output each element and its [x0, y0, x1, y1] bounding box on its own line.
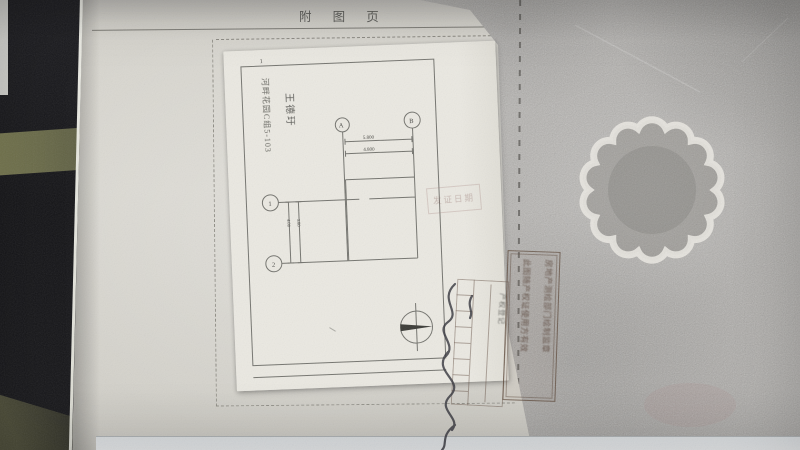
background-sliver	[0, 0, 8, 95]
faint-date-stamp: 发证日期	[426, 184, 482, 215]
dim-label-left-outer: 4.00	[286, 219, 291, 228]
page-title: 附 图 页	[299, 6, 388, 25]
page-number: 1	[260, 59, 263, 65]
owner-name: 王德玗	[283, 93, 298, 128]
pink-smudge	[644, 383, 736, 427]
pencil-mark	[329, 327, 335, 331]
axis-label-1: 1	[268, 201, 272, 208]
dimension-lines-top	[345, 136, 413, 157]
room-outline	[346, 177, 418, 261]
handwritten-signature	[408, 270, 508, 450]
dim-label-top-inner: 4.800	[363, 148, 375, 153]
photo-of-certificate-page: 附 图 页	[0, 0, 800, 450]
faint-date-stamp-text: 发证日期	[433, 191, 476, 207]
axis-label-2: 2	[272, 262, 276, 269]
paper-crease	[575, 25, 700, 92]
dimension-lines-left	[285, 202, 303, 264]
seal-inner-shade	[608, 146, 696, 234]
text-stamp: 此图随产权证使用方有效 房地产测绘部门绘制监章	[502, 250, 560, 402]
dim-label-left-inner: 3.80	[296, 219, 301, 228]
dim-label-top-outer: 5.800	[363, 136, 375, 141]
axis-label-a: A	[339, 122, 344, 129]
axis-label-b: B	[409, 118, 414, 125]
paper-crease-2	[742, 18, 788, 62]
